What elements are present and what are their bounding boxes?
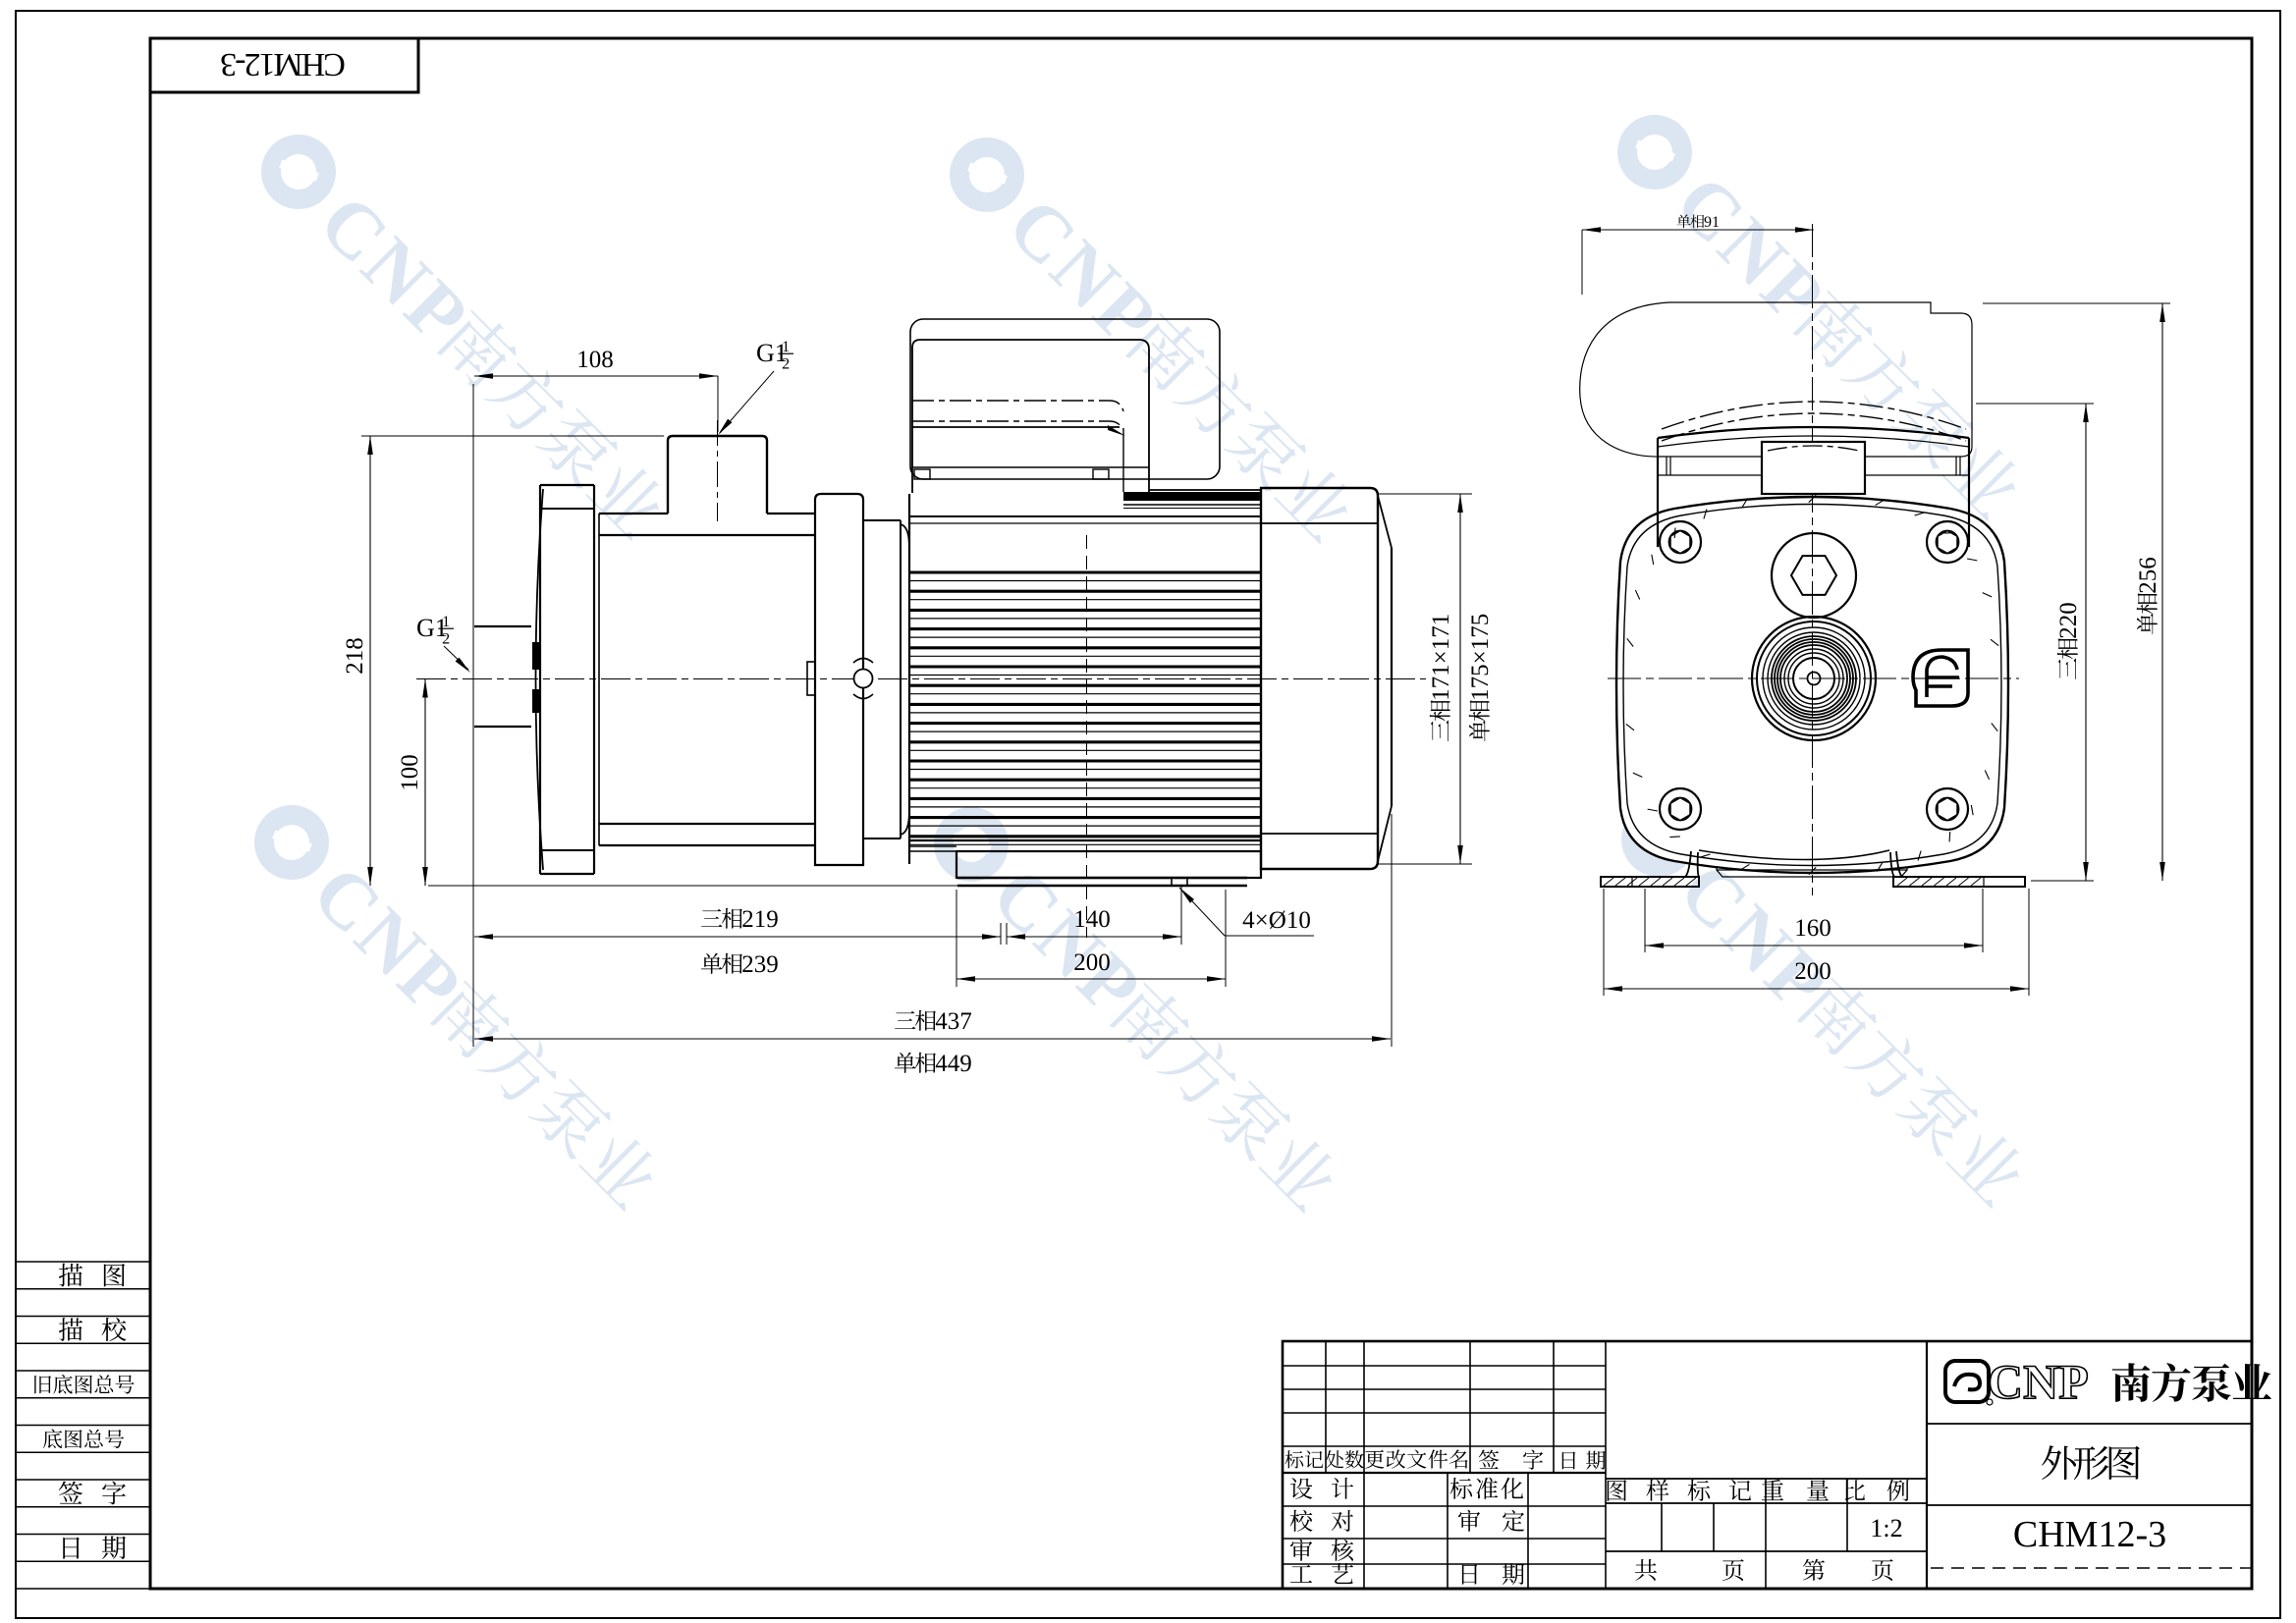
svg-text:100: 100 xyxy=(397,754,423,791)
svg-text:171×171: 171×171 xyxy=(1428,614,1454,701)
svg-text:239: 239 xyxy=(741,951,779,978)
svg-text:437: 437 xyxy=(935,1008,972,1035)
svg-text:91: 91 xyxy=(1704,214,1720,231)
svg-text:449: 449 xyxy=(935,1051,972,1077)
svg-text:219: 219 xyxy=(741,906,779,933)
svg-text:CNP: CNP xyxy=(1988,1354,2089,1409)
svg-text:160: 160 xyxy=(1794,915,1831,942)
svg-text:2: 2 xyxy=(782,355,790,372)
svg-text:256: 256 xyxy=(2135,557,2161,594)
svg-text:CHM12-3: CHM12-3 xyxy=(221,46,346,82)
svg-text:200: 200 xyxy=(1794,958,1831,985)
svg-text:220: 220 xyxy=(2055,602,2082,639)
svg-text:200: 200 xyxy=(1073,949,1111,976)
svg-text:4×Ø10: 4×Ø10 xyxy=(1242,907,1311,934)
svg-text:1: 1 xyxy=(782,339,790,355)
svg-text:1: 1 xyxy=(442,614,450,630)
svg-text:2: 2 xyxy=(442,630,450,647)
svg-text:1:2: 1:2 xyxy=(1870,1514,1902,1542)
svg-text:140: 140 xyxy=(1073,906,1111,933)
svg-text:218: 218 xyxy=(342,637,368,675)
svg-text:CHM12-3: CHM12-3 xyxy=(2013,1514,2166,1555)
svg-text:108: 108 xyxy=(576,347,614,373)
svg-text:175×175: 175×175 xyxy=(1467,614,1494,701)
